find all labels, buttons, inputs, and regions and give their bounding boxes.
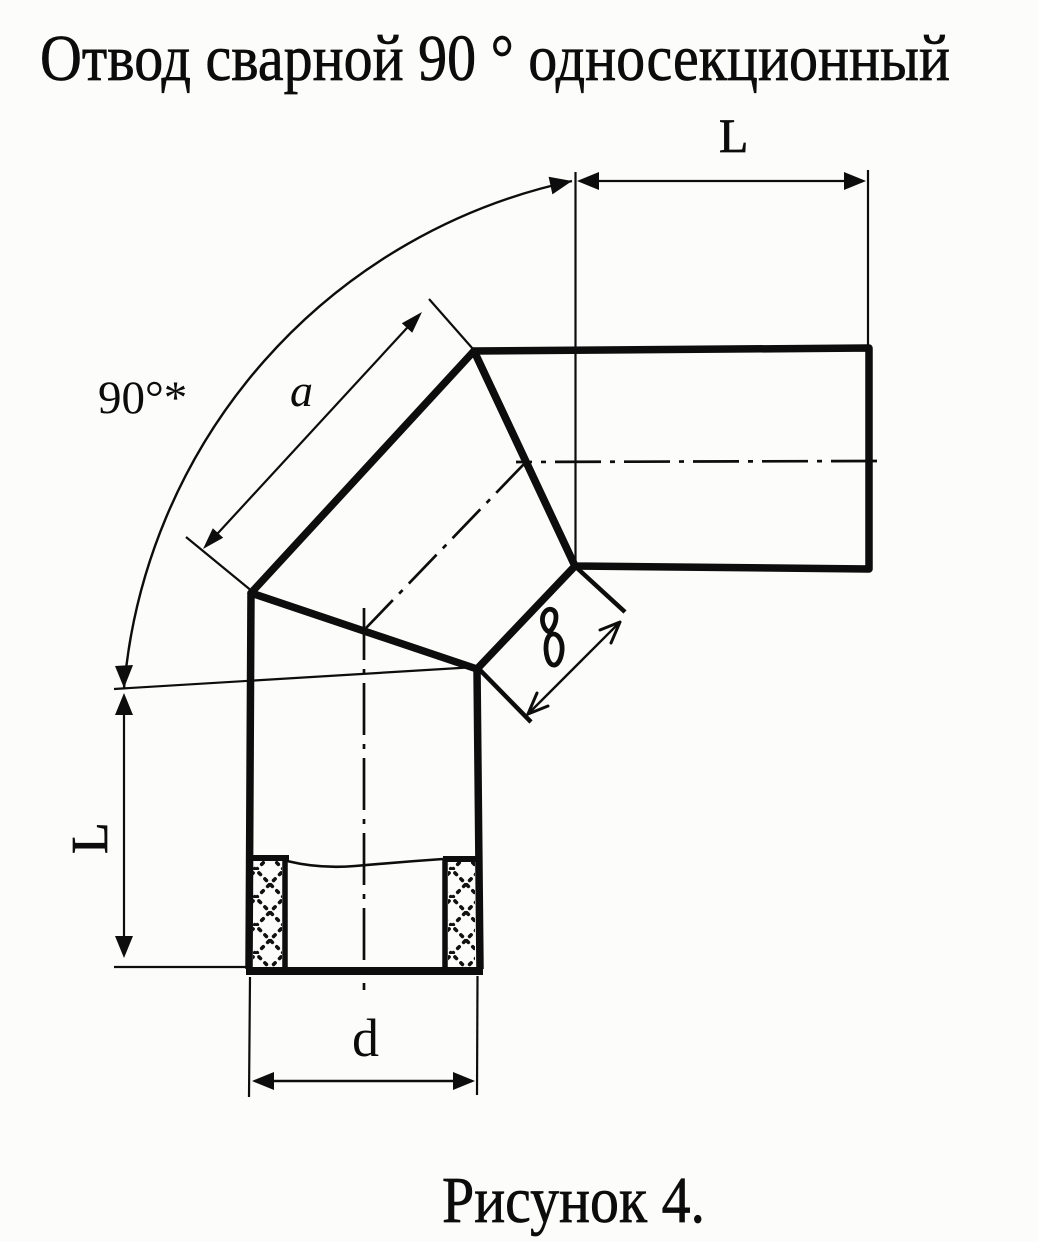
svg-text:Рисунок 4.: Рисунок 4.	[442, 1164, 705, 1237]
svg-text:L: L	[62, 822, 119, 854]
svg-text:Отвод сварной 90 ° односекцион: Отвод сварной 90 ° односекционный	[40, 22, 950, 95]
svg-text:a: a	[290, 365, 313, 416]
svg-text:L: L	[719, 110, 748, 163]
svg-text:90°*: 90°*	[98, 372, 187, 424]
svg-text:d: d	[352, 1008, 379, 1068]
